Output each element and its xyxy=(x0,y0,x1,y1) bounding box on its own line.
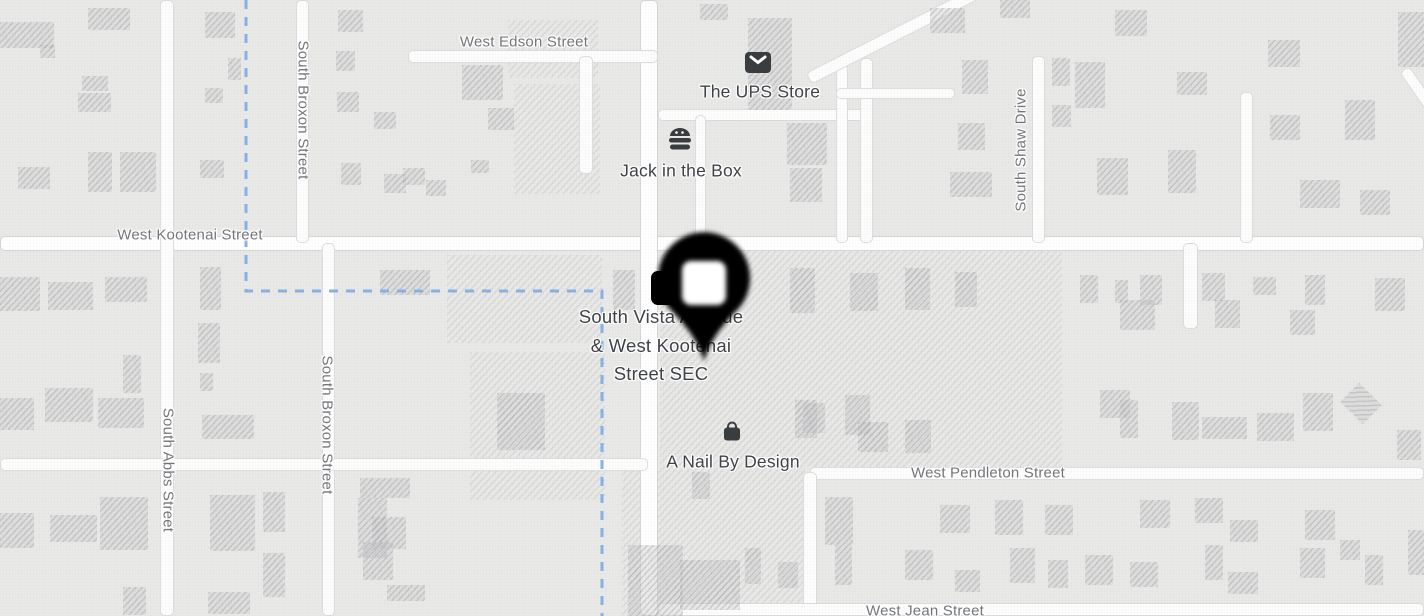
building xyxy=(628,545,683,616)
building xyxy=(962,60,988,94)
road xyxy=(1183,243,1198,329)
building xyxy=(123,355,141,393)
building xyxy=(1257,413,1294,441)
road xyxy=(836,55,848,243)
building xyxy=(1408,530,1424,575)
shopping-bag-icon[interactable] xyxy=(721,420,743,442)
building xyxy=(205,88,223,103)
building xyxy=(488,108,514,130)
building xyxy=(374,112,396,129)
building xyxy=(955,570,980,592)
building xyxy=(263,553,285,597)
road xyxy=(1240,92,1253,243)
building xyxy=(1215,300,1240,328)
building xyxy=(940,505,970,533)
poi-label[interactable]: A Nail By Design xyxy=(666,452,800,473)
building xyxy=(497,393,545,450)
building xyxy=(1397,430,1421,460)
street-label: South Broxon Street xyxy=(295,41,312,180)
burger-icon[interactable] xyxy=(666,126,694,152)
building xyxy=(790,168,822,202)
building xyxy=(958,123,985,150)
building xyxy=(1345,100,1375,140)
building xyxy=(48,282,93,310)
building xyxy=(105,277,147,302)
building xyxy=(803,403,825,433)
map-pin-marker[interactable] xyxy=(649,230,759,370)
road xyxy=(1032,56,1045,243)
building xyxy=(950,172,992,197)
street-label: West Jean Street xyxy=(866,603,984,616)
building xyxy=(955,272,977,307)
building xyxy=(1253,277,1276,295)
building xyxy=(1080,275,1098,303)
road xyxy=(860,58,873,243)
building xyxy=(88,152,112,192)
building xyxy=(88,8,130,30)
building xyxy=(200,160,224,178)
road xyxy=(658,603,1424,616)
building xyxy=(858,422,888,452)
building xyxy=(1172,402,1199,440)
building xyxy=(1303,393,1333,431)
building xyxy=(692,472,710,499)
building xyxy=(40,45,55,58)
building xyxy=(387,585,425,601)
street-label: West Edson Street xyxy=(460,34,588,51)
building xyxy=(778,562,798,588)
street-label: South Abbs Street xyxy=(160,408,177,532)
pin-hole xyxy=(682,261,726,305)
mail-icon[interactable] xyxy=(744,50,772,74)
road xyxy=(810,467,1424,480)
building xyxy=(790,268,815,313)
building xyxy=(1120,300,1155,330)
building xyxy=(1097,158,1128,195)
building xyxy=(1130,562,1158,587)
building xyxy=(360,478,410,498)
building xyxy=(1300,548,1325,578)
building xyxy=(1375,278,1405,311)
building xyxy=(202,415,254,439)
building xyxy=(1305,510,1335,540)
building xyxy=(1085,555,1113,585)
building xyxy=(825,497,853,545)
building xyxy=(1115,10,1147,36)
building xyxy=(1177,72,1207,95)
building xyxy=(336,51,355,71)
street-label: West Kootenai Street xyxy=(117,227,262,244)
building xyxy=(1268,40,1300,67)
building xyxy=(1398,12,1424,67)
building xyxy=(210,495,255,551)
building xyxy=(98,398,144,428)
road xyxy=(579,56,593,174)
building xyxy=(0,277,40,311)
street-label: West Pendleton Street xyxy=(911,465,1065,482)
building xyxy=(995,500,1023,535)
building xyxy=(363,542,393,580)
building xyxy=(78,93,111,112)
building xyxy=(403,168,425,185)
road xyxy=(408,50,658,63)
poi-label[interactable]: The UPS Store xyxy=(700,82,820,103)
building xyxy=(1290,310,1315,335)
building xyxy=(1048,560,1068,588)
building xyxy=(337,92,359,112)
building xyxy=(905,268,930,310)
building xyxy=(471,160,489,173)
building xyxy=(700,4,728,20)
building xyxy=(1205,545,1223,580)
building xyxy=(426,180,446,196)
building xyxy=(905,420,931,453)
building xyxy=(1202,273,1225,301)
building xyxy=(1228,572,1258,594)
building xyxy=(1168,150,1196,193)
poi-label[interactable]: Jack in the Box xyxy=(620,161,742,182)
building xyxy=(1270,115,1300,140)
building xyxy=(82,76,108,91)
building xyxy=(1010,548,1035,583)
road xyxy=(836,88,955,99)
building xyxy=(930,8,965,33)
building xyxy=(745,548,761,584)
building xyxy=(120,152,156,192)
building xyxy=(123,587,146,615)
building xyxy=(1052,58,1070,86)
building xyxy=(905,550,933,580)
building xyxy=(1195,498,1223,523)
building xyxy=(200,373,213,391)
building xyxy=(0,513,34,548)
map-canvas[interactable]: West Edson StreetWest Kootenai StreetWes… xyxy=(0,0,1424,616)
building xyxy=(1300,180,1340,208)
building xyxy=(1045,505,1073,535)
building xyxy=(835,545,852,585)
building xyxy=(850,273,878,311)
building xyxy=(1000,0,1030,18)
building xyxy=(380,270,430,295)
building xyxy=(341,163,361,185)
building xyxy=(1365,555,1383,585)
building xyxy=(1340,540,1360,560)
building xyxy=(228,58,241,80)
building xyxy=(1202,417,1247,439)
building xyxy=(1120,400,1138,438)
building xyxy=(263,492,285,532)
building xyxy=(1305,275,1325,305)
building xyxy=(338,10,363,32)
building xyxy=(462,65,503,100)
building xyxy=(1360,190,1390,215)
building xyxy=(100,497,148,550)
building xyxy=(1230,520,1258,542)
building xyxy=(50,515,97,542)
building xyxy=(18,167,50,189)
street-label: South Shaw Drive xyxy=(1013,88,1030,211)
building xyxy=(45,388,93,422)
building xyxy=(1052,105,1071,127)
road xyxy=(803,472,817,616)
building xyxy=(787,123,827,165)
building xyxy=(205,12,235,38)
building xyxy=(680,560,740,610)
building xyxy=(1075,62,1105,108)
street-label: South Broxon Street xyxy=(319,356,336,495)
building xyxy=(200,267,221,310)
building xyxy=(1140,500,1170,528)
building xyxy=(0,398,34,430)
building xyxy=(208,592,250,614)
building xyxy=(198,323,220,363)
